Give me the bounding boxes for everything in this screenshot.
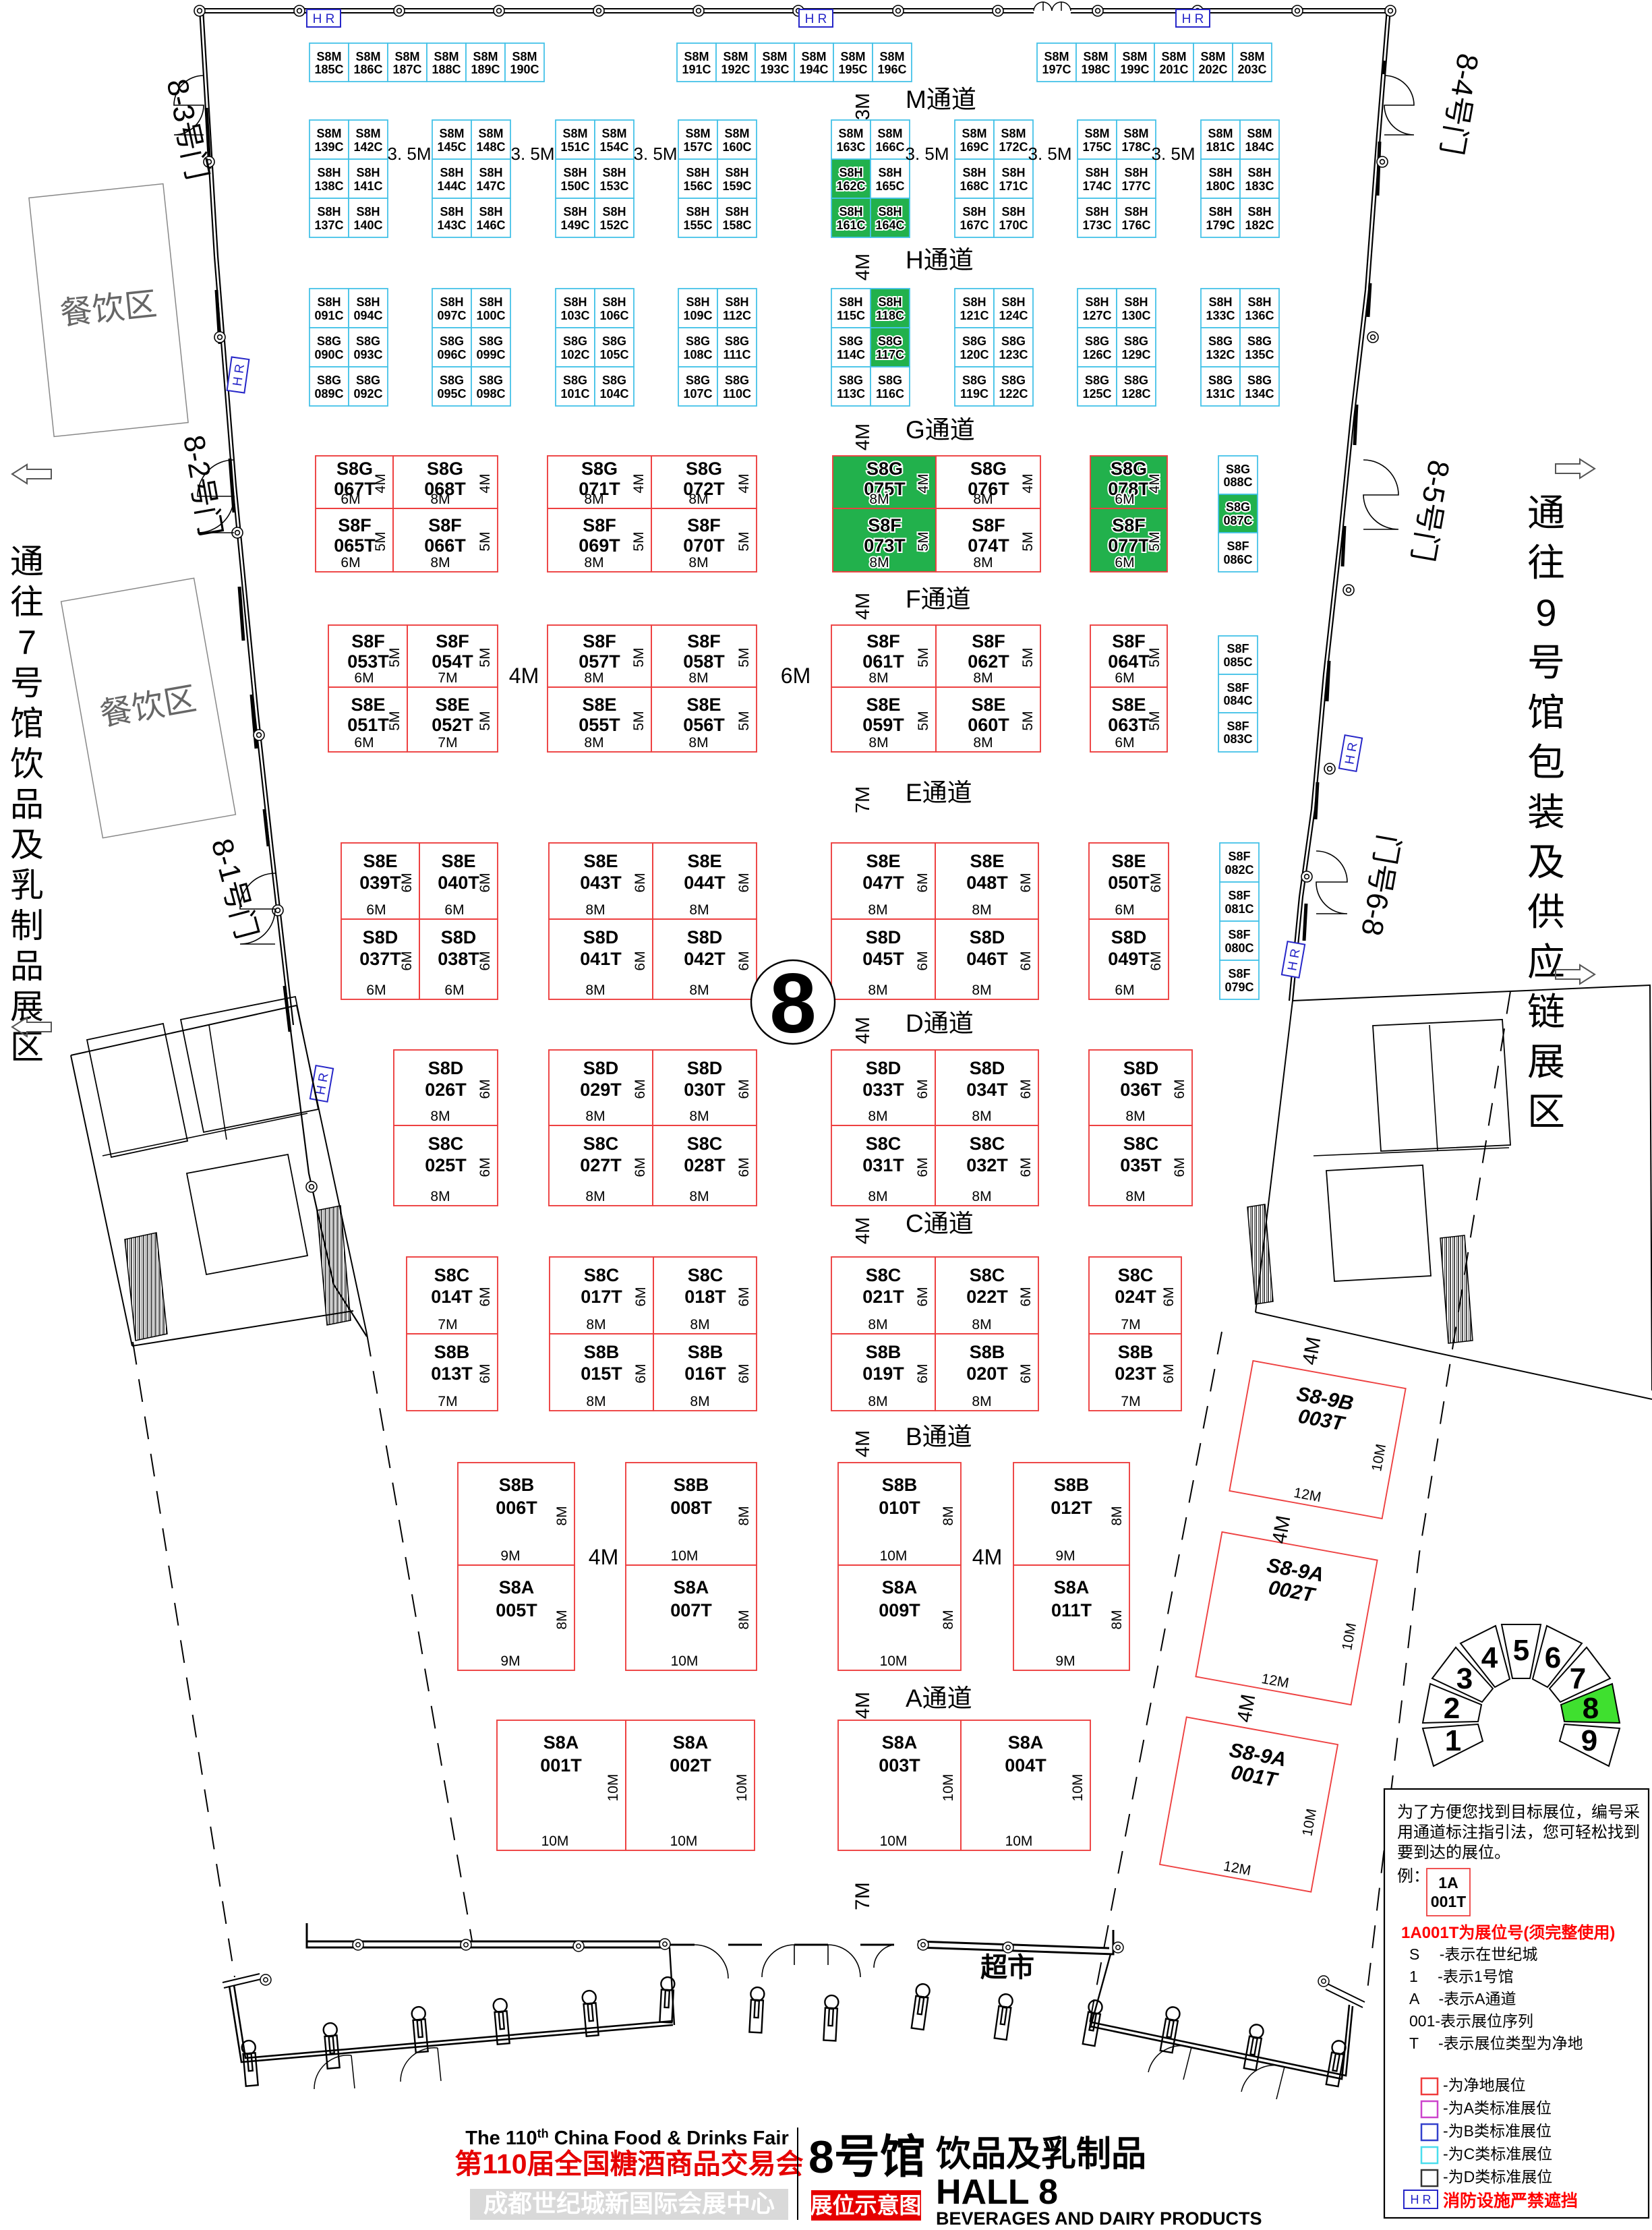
svg-text:001-表示展位序列: 001-表示展位序列 (1409, 2012, 1533, 2030)
svg-text:S8H: S8H (686, 166, 709, 179)
svg-text:S8H: S8H (1085, 205, 1109, 218)
svg-text:S8A: S8A (882, 1577, 918, 1597)
svg-text:S8B: S8B (1118, 1342, 1154, 1362)
svg-text:186C: 186C (353, 63, 382, 76)
svg-text:7M: 7M (1121, 1394, 1140, 1409)
svg-text:185C: 185C (314, 63, 343, 76)
svg-text:014T: 014T (431, 1287, 473, 1307)
svg-text:6M: 6M (477, 873, 493, 892)
svg-text:S8G: S8G (479, 334, 503, 348)
svg-text:8M: 8M (868, 982, 887, 998)
svg-text:S8M: S8M (724, 127, 749, 140)
svg-text:112C: 112C (723, 309, 751, 322)
svg-text:3. 5M: 3. 5M (387, 144, 431, 164)
svg-text:8M: 8M (972, 982, 991, 998)
svg-text:8: 8 (769, 957, 817, 1051)
svg-text:030T: 030T (684, 1080, 726, 1100)
svg-text:S8M: S8M (355, 127, 380, 140)
svg-text:8M: 8M (689, 1109, 709, 1124)
svg-text:-为B类标准展位: -为B类标准展位 (1443, 2122, 1552, 2140)
svg-text:4M: 4M (509, 664, 539, 688)
svg-text:A -表示A通道: A -表示A通道 (1409, 1990, 1516, 2007)
svg-text:S8C: S8C (866, 1134, 902, 1154)
svg-text:136C: 136C (1245, 309, 1274, 322)
svg-text:9: 9 (1581, 1724, 1597, 1757)
svg-text:002T: 002T (670, 1755, 711, 1776)
svg-text:8: 8 (1583, 1692, 1599, 1725)
svg-text:047T: 047T (862, 873, 904, 893)
svg-text:092C: 092C (353, 387, 382, 401)
svg-text:10M: 10M (671, 1653, 699, 1669)
svg-text:162C: 162C (836, 179, 865, 193)
svg-text:8M: 8M (973, 492, 993, 507)
svg-text:160C: 160C (722, 140, 751, 154)
svg-text:S8M: S8M (684, 50, 709, 63)
svg-text:177C: 177C (1121, 179, 1150, 193)
svg-text:001T: 001T (1431, 1893, 1466, 1910)
svg-text:053T: 053T (347, 651, 389, 672)
svg-text:为了方便您找到目标展位，编号采: 为了方便您找到目标展位，编号采 (1397, 1803, 1640, 1821)
svg-text:8号馆: 8号馆 (808, 2132, 926, 2183)
svg-text:10M: 10M (1070, 1774, 1086, 1802)
svg-text:S8A: S8A (882, 1732, 918, 1753)
svg-text:9M: 9M (500, 1548, 520, 1564)
svg-text:S8M: S8M (1208, 127, 1233, 140)
svg-text:S8G: S8G (866, 459, 903, 479)
svg-text:S8M: S8M (723, 50, 748, 63)
svg-text:161C: 161C (836, 218, 865, 232)
svg-text:8M: 8M (736, 1506, 752, 1525)
svg-text:156C: 156C (683, 179, 712, 193)
svg-text:4M: 4M (852, 1430, 874, 1457)
svg-text:090C: 090C (314, 348, 343, 361)
svg-text:S8G: S8G (1124, 334, 1148, 348)
svg-text:121C: 121C (960, 309, 989, 322)
svg-text:051T: 051T (347, 715, 389, 735)
svg-text:S8E: S8E (583, 851, 618, 871)
svg-text:027T: 027T (580, 1155, 622, 1175)
svg-text:066T: 066T (424, 535, 466, 556)
svg-text:S8G: S8G (1247, 334, 1272, 348)
svg-text:F通道: F通道 (906, 585, 971, 613)
svg-text:029T: 029T (580, 1080, 622, 1100)
svg-text:通: 通 (1527, 492, 1565, 534)
svg-text:6M: 6M (477, 1157, 493, 1177)
svg-text:S8F: S8F (583, 515, 616, 535)
svg-text:4M: 4M (852, 1217, 874, 1244)
svg-text:6M: 6M (915, 873, 931, 892)
svg-text:6: 6 (1545, 1641, 1561, 1674)
svg-text:S8B: S8B (499, 1475, 535, 1495)
svg-text:6M: 6M (915, 951, 931, 970)
svg-text:120C: 120C (960, 348, 989, 361)
svg-text:005T: 005T (496, 1600, 537, 1620)
svg-text:S8H: S8H (479, 205, 502, 218)
svg-text:8M: 8M (585, 902, 605, 918)
svg-text:8M: 8M (1109, 1506, 1125, 1525)
svg-text:098C: 098C (476, 387, 505, 401)
svg-text:6M: 6M (736, 1157, 752, 1177)
svg-text:S8G: S8G (317, 374, 341, 387)
svg-text:139C: 139C (314, 140, 343, 154)
svg-text:S8H: S8H (686, 295, 709, 309)
svg-text:119C: 119C (960, 387, 989, 401)
svg-text:7: 7 (1570, 1662, 1586, 1695)
svg-text:144C: 144C (437, 179, 466, 193)
svg-text:S8F: S8F (428, 515, 462, 535)
svg-text:C通道: C通道 (906, 1210, 974, 1237)
svg-text:154C: 154C (599, 140, 628, 154)
svg-text:8M: 8M (1125, 1109, 1145, 1124)
svg-text:183C: 183C (1245, 179, 1274, 193)
svg-text:137C: 137C (314, 218, 343, 232)
svg-text:S8G: S8G (962, 334, 986, 348)
svg-text:191C: 191C (682, 63, 711, 76)
svg-text:168C: 168C (960, 179, 989, 193)
svg-text:153C: 153C (599, 179, 628, 193)
svg-text:10M: 10M (606, 1774, 621, 1802)
svg-text:125C: 125C (1082, 387, 1111, 401)
svg-text:HALL 8: HALL 8 (936, 2173, 1058, 2212)
svg-text:069T: 069T (579, 535, 620, 556)
svg-text:020T: 020T (966, 1363, 1008, 1384)
svg-text:8M: 8M (868, 902, 887, 918)
svg-text:118C: 118C (876, 309, 904, 322)
svg-text:S8E: S8E (441, 851, 475, 871)
svg-text:消防设施严禁遮挡: 消防设施严禁遮挡 (1443, 2191, 1578, 2210)
svg-text:展: 展 (1527, 1040, 1565, 1083)
svg-text:要到达的展位。: 要到达的展位。 (1397, 1844, 1510, 1862)
svg-text:8M: 8M (554, 1506, 570, 1525)
svg-text:S8G: S8G (686, 459, 722, 479)
svg-text:S8H: S8H (356, 166, 380, 179)
svg-text:S8E: S8E (351, 695, 385, 715)
svg-text:087C: 087C (1223, 514, 1252, 527)
svg-text:9M: 9M (1055, 1548, 1075, 1564)
svg-text:3. 5M: 3. 5M (1028, 144, 1071, 164)
svg-text:S8H: S8H (1124, 295, 1148, 309)
svg-text:S8M: S8M (1161, 50, 1186, 63)
svg-text:号: 号 (1527, 641, 1565, 684)
svg-text:S8D: S8D (428, 1058, 464, 1078)
svg-text:S8D: S8D (441, 927, 477, 947)
svg-text:10M: 10M (671, 1548, 699, 1564)
svg-text:9M: 9M (1055, 1653, 1075, 1669)
svg-text:6M: 6M (736, 1363, 752, 1383)
svg-text:6M: 6M (781, 664, 810, 688)
svg-text:S8E: S8E (687, 851, 721, 871)
svg-text:6M: 6M (1018, 873, 1034, 892)
svg-text:093C: 093C (353, 348, 382, 361)
svg-text:S8D: S8D (1123, 1058, 1159, 1078)
svg-text:197C: 197C (1042, 63, 1071, 76)
svg-text:8M: 8M (941, 1610, 956, 1629)
svg-text:8M: 8M (973, 735, 993, 751)
svg-text:S8M: S8M (879, 50, 904, 63)
svg-text:8M: 8M (430, 1109, 450, 1124)
svg-text:S8H: S8H (440, 166, 463, 179)
svg-text:041T: 041T (580, 949, 622, 969)
svg-text:6M: 6M (632, 1157, 648, 1177)
svg-text:7M: 7M (438, 1317, 457, 1332)
svg-text:S8H: S8H (1124, 205, 1148, 218)
svg-text:172C: 172C (999, 140, 1028, 154)
svg-text:022T: 022T (966, 1287, 1008, 1307)
svg-text:001T: 001T (540, 1755, 582, 1776)
svg-text:S8F: S8F (1227, 720, 1249, 733)
svg-text:8M: 8M (585, 982, 605, 998)
svg-text:015T: 015T (581, 1363, 622, 1384)
svg-text:107C: 107C (683, 387, 712, 401)
svg-text:8M: 8M (972, 1109, 991, 1124)
svg-text:163C: 163C (836, 140, 865, 154)
svg-text:S8H: S8H (962, 166, 986, 179)
svg-text:044T: 044T (684, 873, 726, 893)
svg-text:S8G: S8G (336, 459, 373, 479)
svg-text:003T: 003T (879, 1755, 920, 1776)
svg-text:6M: 6M (1161, 1287, 1177, 1306)
svg-text:S8H: S8H (1247, 205, 1271, 218)
svg-text:5M: 5M (387, 647, 403, 667)
svg-text:6M: 6M (354, 670, 374, 686)
svg-text:040T: 040T (438, 873, 479, 893)
svg-text:S8M: S8M (801, 50, 826, 63)
svg-text:S8M: S8M (762, 50, 787, 63)
svg-text:034T: 034T (966, 1080, 1008, 1100)
svg-text:8M: 8M (688, 670, 708, 686)
svg-text:展位示意图: 展位示意图 (810, 2193, 922, 2218)
svg-text:094C: 094C (353, 309, 382, 322)
svg-text:S8G: S8G (1085, 334, 1109, 348)
svg-text:6M: 6M (341, 555, 360, 570)
svg-text:S8F: S8F (1228, 850, 1250, 863)
svg-text:8M: 8M (586, 1317, 606, 1332)
svg-text:159C: 159C (722, 179, 751, 193)
svg-text:5M: 5M (1020, 531, 1036, 551)
svg-text:017T: 017T (581, 1287, 622, 1307)
svg-text:S8G: S8G (602, 374, 626, 387)
svg-text:133C: 133C (1206, 309, 1235, 322)
svg-text:S8H: S8H (1208, 166, 1232, 179)
svg-text:063T: 063T (1108, 715, 1150, 735)
svg-text:6M: 6M (444, 982, 464, 998)
svg-text:-为A类标准展位: -为A类标准展位 (1443, 2099, 1552, 2117)
svg-text:S8M: S8M (316, 127, 341, 140)
svg-text:S8F: S8F (868, 515, 902, 535)
svg-text:M通道: M通道 (906, 86, 976, 113)
svg-text:6M: 6M (1115, 902, 1134, 918)
svg-text:S8H: S8H (839, 295, 862, 309)
svg-text:S8G: S8G (839, 334, 863, 348)
svg-text:2: 2 (1444, 1692, 1460, 1725)
svg-text:179C: 179C (1206, 218, 1235, 232)
svg-text:6M: 6M (477, 951, 493, 970)
svg-text:192C: 192C (721, 63, 750, 76)
svg-text:S8C: S8C (1123, 1134, 1159, 1154)
svg-text:6M: 6M (915, 1287, 931, 1306)
svg-text:第110届全国糖酒商品交易会: 第110届全国糖酒商品交易会 (454, 2148, 803, 2179)
svg-text:6M: 6M (1018, 1157, 1034, 1177)
svg-text:8M: 8M (584, 670, 603, 686)
svg-text:101C: 101C (560, 387, 589, 401)
svg-text:8M: 8M (689, 1189, 709, 1204)
svg-text:4M: 4M (373, 473, 388, 493)
svg-text:084C: 084C (1223, 694, 1252, 707)
svg-text:8M: 8M (688, 555, 708, 570)
svg-text:6M: 6M (736, 1287, 752, 1306)
svg-text:S8H: S8H (602, 205, 626, 218)
svg-text:8M: 8M (972, 1394, 991, 1409)
svg-text:5M: 5M (631, 531, 647, 551)
svg-text:-为D类标准展位: -为D类标准展位 (1443, 2168, 1552, 2185)
svg-text:S8G: S8G (1001, 374, 1026, 387)
svg-text:049T: 049T (1108, 949, 1150, 969)
svg-text:083C: 083C (1223, 732, 1252, 746)
svg-text:111C: 111C (723, 348, 750, 361)
svg-text:117C: 117C (876, 348, 904, 361)
svg-text:S8H: S8H (440, 295, 463, 309)
svg-text:8M: 8M (972, 902, 991, 918)
svg-text:S8M: S8M (1083, 50, 1108, 63)
svg-text:116C: 116C (876, 387, 904, 401)
svg-text:057T: 057T (579, 651, 620, 672)
svg-text:S8F: S8F (338, 515, 372, 535)
svg-text:S8D: S8D (970, 1058, 1005, 1078)
svg-text:157C: 157C (683, 140, 712, 154)
svg-text:089C: 089C (314, 387, 343, 401)
svg-text:5M: 5M (1147, 711, 1162, 730)
svg-text:S8C: S8C (428, 1134, 464, 1154)
svg-text:3. 5M: 3. 5M (510, 144, 554, 164)
svg-text:S8G: S8G (563, 374, 587, 387)
svg-text:S8C: S8C (866, 1265, 902, 1285)
svg-text:S8H: S8H (602, 166, 626, 179)
svg-text:号: 号 (10, 664, 44, 702)
svg-text:3. 5M: 3. 5M (1151, 144, 1195, 164)
svg-text:054T: 054T (432, 651, 473, 672)
svg-text:用通道标注指引法，您可轻松找到: 用通道标注指引法，您可轻松找到 (1397, 1823, 1640, 1842)
svg-text:8M: 8M (430, 492, 450, 507)
svg-text:S8C: S8C (970, 1265, 1005, 1285)
svg-text:097C: 097C (437, 309, 466, 322)
svg-text:S8G: S8G (1111, 459, 1147, 479)
svg-text:通: 通 (10, 543, 44, 581)
svg-text:4M: 4M (477, 473, 493, 493)
svg-text:9M: 9M (500, 1653, 520, 1669)
svg-text:5M: 5M (1020, 711, 1036, 730)
svg-text:6M: 6M (1161, 1363, 1177, 1383)
svg-text:5M: 5M (631, 647, 647, 667)
svg-text:成都世纪城新国际会展中心: 成都世纪城新国际会展中心 (483, 2190, 775, 2217)
svg-text:138C: 138C (314, 179, 343, 193)
svg-text:S8H: S8H (878, 166, 902, 179)
svg-text:070T: 070T (683, 535, 725, 556)
svg-text:108C: 108C (683, 348, 712, 361)
svg-text:6M: 6M (736, 951, 752, 970)
svg-text:5M: 5M (631, 711, 647, 730)
svg-text:099C: 099C (476, 348, 505, 361)
svg-text:5M: 5M (1147, 531, 1162, 551)
svg-text:8M: 8M (972, 1317, 991, 1332)
svg-text:S8C: S8C (434, 1265, 470, 1285)
svg-text:往: 往 (10, 583, 44, 621)
svg-text:S8D: S8D (687, 1058, 723, 1078)
svg-text:S8B: S8B (866, 1342, 902, 1362)
svg-text:6M: 6M (736, 873, 752, 892)
svg-text:8M: 8M (586, 1394, 606, 1409)
svg-text:S8C: S8C (688, 1265, 724, 1285)
svg-text:S8G: S8G (1226, 463, 1250, 476)
svg-text:S8G: S8G (878, 374, 902, 387)
svg-text:018T: 018T (684, 1287, 726, 1307)
svg-text:8M: 8M (554, 1610, 570, 1629)
svg-text:10M: 10M (670, 1833, 698, 1849)
svg-text:7: 7 (18, 624, 36, 662)
svg-text:6M: 6M (1115, 492, 1134, 507)
svg-text:S8C: S8C (1118, 1265, 1154, 1285)
svg-text:S8D: S8D (583, 1058, 619, 1078)
svg-text:The 110th China Food & Drinks: The 110th China Food & Drinks Fair (465, 2127, 789, 2149)
svg-text:5M: 5M (1020, 647, 1036, 667)
svg-text:-为净地展位: -为净地展位 (1443, 2076, 1526, 2094)
svg-text:1A: 1A (1438, 1874, 1458, 1891)
svg-text:4M: 4M (852, 1017, 874, 1044)
svg-text:134C: 134C (1245, 387, 1274, 401)
svg-text:6M: 6M (915, 1079, 931, 1098)
svg-text:10M: 10M (941, 1774, 956, 1802)
svg-text:6M: 6M (1148, 951, 1164, 970)
svg-text:S8H: S8H (563, 166, 587, 179)
svg-text:S8G: S8G (356, 334, 380, 348)
svg-text:S8M: S8M (1239, 50, 1264, 63)
svg-text:S8C: S8C (584, 1265, 620, 1285)
svg-text:155C: 155C (683, 218, 712, 232)
svg-text:10M: 10M (880, 1833, 908, 1849)
svg-text:158C: 158C (722, 218, 751, 232)
svg-text:176C: 176C (1121, 218, 1150, 232)
svg-text:S8M: S8M (562, 127, 587, 140)
svg-text:8M: 8M (690, 1317, 709, 1332)
svg-text:036T: 036T (1120, 1080, 1162, 1100)
svg-text:8M: 8M (1125, 1189, 1145, 1204)
svg-text:S8D: S8D (866, 927, 902, 947)
svg-text:S8G: S8G (839, 374, 863, 387)
svg-text:8M: 8M (868, 670, 888, 686)
svg-text:082C: 082C (1225, 863, 1253, 877)
svg-text:S8M: S8M (316, 50, 341, 63)
svg-text:6M: 6M (1115, 670, 1134, 686)
svg-text:064T: 064T (1108, 651, 1150, 672)
svg-text:8M: 8M (688, 492, 708, 507)
svg-text:S8D: S8D (583, 927, 619, 947)
svg-text:5M: 5M (916, 531, 931, 551)
svg-text:S8H: S8H (878, 205, 902, 218)
svg-text:6M: 6M (399, 951, 415, 970)
svg-text:S8E: S8E (971, 695, 1005, 715)
svg-text:S8H: S8H (1247, 166, 1271, 179)
svg-text:S8F: S8F (1228, 967, 1250, 980)
svg-text:S8G: S8G (427, 459, 463, 479)
svg-text:S8F: S8F (1228, 889, 1250, 902)
svg-text:S8H: S8H (1001, 205, 1025, 218)
svg-text:S8F: S8F (972, 631, 1005, 651)
svg-text:165C: 165C (875, 179, 904, 193)
svg-text:096C: 096C (437, 348, 466, 361)
svg-text:-为C类标准展位: -为C类标准展位 (1443, 2145, 1552, 2163)
svg-text:S8B: S8B (688, 1342, 724, 1362)
svg-text:077T: 077T (1108, 535, 1150, 556)
svg-text:S8H: S8H (686, 205, 709, 218)
